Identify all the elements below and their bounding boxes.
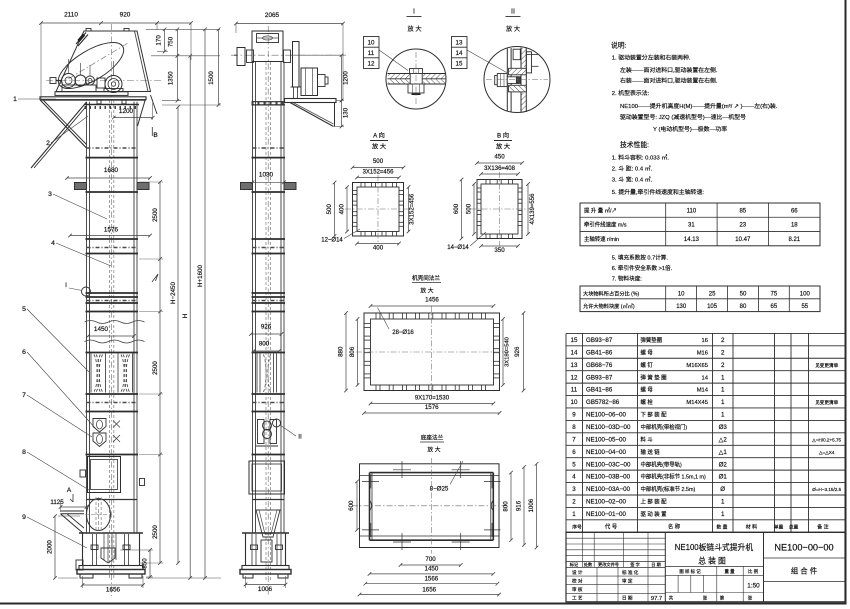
svg-text:螺 母: 螺 母	[641, 386, 654, 394]
svg-text:名 称: 名 称	[668, 522, 681, 530]
svg-text:1: 1	[13, 96, 17, 103]
svg-text:重 量: 重 量	[724, 568, 735, 575]
svg-text:放 大: 放 大	[496, 143, 510, 151]
svg-text:2: 2	[721, 349, 725, 356]
svg-text:1: 1	[721, 374, 725, 381]
svg-text:14: 14	[702, 375, 709, 381]
svg-text:放 大: 放 大	[407, 25, 421, 33]
svg-text:H−2450: H−2450	[170, 282, 177, 304]
svg-text:主轴转速 r/min: 主轴转速 r/min	[584, 235, 619, 243]
svg-text:14−Ø14: 14−Ø14	[447, 245, 469, 251]
svg-text:设 计: 设 计	[572, 569, 583, 576]
svg-text:弹簧垫圈: 弹簧垫圈	[641, 336, 663, 344]
svg-text:85: 85	[739, 208, 746, 214]
svg-text:1200: 1200	[119, 108, 134, 115]
svg-text:4: 4	[572, 474, 576, 481]
svg-text:更改文件号: 更改文件号	[598, 561, 619, 568]
svg-text:105: 105	[707, 304, 718, 310]
svg-text:机壳间法兰: 机壳间法兰	[412, 274, 440, 282]
svg-text:审 定: 审 定	[622, 577, 633, 584]
svg-text:A: A	[67, 487, 72, 494]
svg-text:备 注: 备 注	[817, 523, 828, 530]
svg-text:技术性能:: 技术性能:	[620, 140, 649, 149]
svg-text:3X180=540: 3X180=540	[505, 337, 511, 367]
svg-text:GB93−87: GB93−87	[586, 374, 613, 381]
svg-text:55: 55	[801, 304, 808, 310]
svg-text:放 大: 放 大	[427, 446, 440, 454]
svg-text:见变更清单: 见变更清单	[815, 399, 838, 406]
svg-text:右装——面对进料口,驱动装置在右侧.: 右装——面对进料口,驱动装置在右侧.	[620, 77, 718, 85]
svg-text:1456: 1456	[425, 297, 439, 304]
svg-text:放 大: 放 大	[420, 287, 433, 295]
svg-text:1350: 1350	[168, 71, 175, 85]
svg-text:13: 13	[571, 362, 578, 369]
svg-text:1: 1	[721, 511, 725, 518]
svg-text:10: 10	[571, 399, 578, 406]
svg-text:3: 3	[572, 486, 576, 493]
svg-text:I: I	[65, 282, 67, 289]
svg-text:916: 916	[516, 500, 523, 511]
svg-text:880: 880	[338, 346, 345, 357]
svg-text:18: 18	[791, 223, 798, 229]
svg-text:5: 5	[22, 306, 26, 313]
svg-text:1576: 1576	[425, 404, 439, 411]
svg-text:校 对: 校 对	[572, 577, 583, 584]
svg-text:△1: △1	[719, 449, 728, 456]
svg-text:下 部 装 配: 下 部 装 配	[641, 411, 668, 419]
svg-text:8−Ø25: 8−Ø25	[430, 486, 449, 493]
svg-text:920: 920	[120, 12, 131, 19]
svg-text:9: 9	[572, 412, 576, 419]
svg-text:1656: 1656	[422, 587, 436, 594]
svg-text:Ø3: Ø3	[719, 424, 728, 431]
svg-text:13: 13	[456, 40, 463, 47]
svg-text:800: 800	[259, 341, 270, 348]
svg-text:2500: 2500	[152, 208, 159, 222]
svg-text:总重: 总重	[789, 523, 799, 530]
svg-text:GB5782−86: GB5782−86	[586, 399, 620, 406]
svg-text:组 合 件: 组 合 件	[791, 567, 818, 576]
svg-text:110: 110	[687, 208, 697, 214]
svg-text:806: 806	[349, 346, 356, 357]
svg-text:2: 2	[721, 362, 725, 369]
svg-text:7. 物料块度:: 7. 物料块度:	[612, 275, 643, 283]
svg-text:A 向: A 向	[373, 132, 385, 140]
svg-text:牵引件线速度 m/s: 牵引件线速度 m/s	[584, 221, 627, 229]
svg-text:130: 130	[676, 304, 687, 310]
svg-text:75: 75	[771, 291, 778, 297]
svg-text:螺 母: 螺 母	[641, 348, 654, 356]
svg-text:上 部 装 配: 上 部 装 配	[641, 498, 668, 506]
svg-text:序号: 序号	[572, 523, 582, 530]
svg-text:NE100−02−00: NE100−02−00	[586, 499, 626, 506]
svg-text:比 例: 比 例	[748, 568, 759, 575]
svg-text:400: 400	[373, 245, 384, 252]
svg-text:GB41−86: GB41−86	[586, 387, 613, 394]
svg-text:1450: 1450	[94, 326, 109, 333]
svg-text:NE100−03C−00: NE100−03C−00	[586, 461, 631, 468]
svg-text:400: 400	[339, 204, 346, 215]
svg-text:3X152=456: 3X152=456	[363, 170, 395, 176]
svg-text:放 大: 放 大	[372, 143, 386, 151]
svg-text:1: 1	[721, 412, 725, 419]
svg-text:1: 1	[572, 511, 576, 518]
svg-text:△=H/0.2+5.75: △=H/0.2+5.75	[812, 437, 841, 442]
svg-text:500: 500	[326, 204, 333, 215]
svg-text:8: 8	[572, 424, 576, 431]
svg-text:1200: 1200	[343, 71, 350, 85]
svg-text:25: 25	[709, 291, 716, 297]
svg-text:签 字: 签 字	[630, 561, 640, 567]
svg-text:允许大物料块度 (㎡㎡): 允许大物料块度 (㎡㎡)	[583, 302, 635, 310]
svg-text:单重: 单重	[774, 523, 784, 530]
svg-text:926: 926	[514, 346, 521, 357]
svg-text:1450: 1450	[425, 566, 439, 573]
svg-text:1656: 1656	[106, 587, 121, 594]
svg-text:输 送 链: 输 送 链	[641, 448, 661, 456]
svg-text:中部机壳(带导轨): 中部机壳(带导轨)	[641, 460, 683, 468]
svg-text:2110: 2110	[64, 12, 78, 19]
svg-text:1. 驱动装置分左装和右装两种.: 1. 驱动装置分左装和右装两种.	[612, 54, 691, 62]
svg-text:2. 斗 距: 0.4 ㎡.: 2. 斗 距: 0.4 ㎡.	[612, 165, 653, 173]
svg-text:7: 7	[22, 392, 26, 399]
svg-text:600: 600	[453, 203, 460, 214]
svg-text:28−Ø16: 28−Ø16	[392, 330, 414, 336]
svg-text:底座法兰: 底座法兰	[421, 434, 444, 442]
svg-text:1500: 1500	[208, 71, 215, 85]
svg-text:B 向: B 向	[497, 132, 509, 140]
svg-text:第: 第	[720, 594, 725, 601]
svg-text:I: I	[413, 9, 415, 16]
svg-text:螺 钉: 螺 钉	[641, 361, 654, 369]
svg-text:△2: △2	[719, 436, 728, 443]
svg-text:Ø1: Ø1	[719, 474, 728, 481]
svg-text:1030: 1030	[259, 172, 274, 179]
svg-text:12: 12	[571, 374, 578, 381]
svg-text:6: 6	[572, 449, 576, 456]
svg-text:1125: 1125	[50, 499, 64, 506]
svg-text:66: 66	[791, 208, 798, 214]
svg-text:Ø=H−3.15/2.5: Ø=H−3.15/2.5	[812, 487, 841, 492]
svg-text:10: 10	[368, 40, 375, 47]
svg-text:见变更清单: 见变更清单	[815, 362, 838, 369]
svg-text:弹 簧 垫 圈: 弹 簧 垫 圈	[641, 373, 667, 381]
svg-text:总 装 图: 总 装 图	[698, 556, 726, 566]
svg-text:3X152=456: 3X152=456	[410, 193, 416, 225]
svg-text:1006: 1006	[258, 586, 273, 593]
svg-text:2. 机型表示法:: 2. 机型表示法:	[612, 89, 650, 97]
svg-text:926: 926	[261, 324, 272, 331]
svg-text:工 艺: 工 艺	[572, 596, 583, 601]
svg-text:23: 23	[739, 223, 746, 229]
svg-text:M14: M14	[697, 388, 709, 394]
svg-text:11: 11	[368, 50, 375, 57]
svg-text:31: 31	[688, 223, 695, 229]
svg-text:标记: 标记	[570, 561, 579, 568]
svg-text:16: 16	[702, 338, 708, 344]
svg-text:3: 3	[48, 191, 52, 198]
svg-text:4: 4	[51, 240, 55, 247]
svg-text:5: 5	[572, 461, 576, 468]
svg-text:B: B	[153, 132, 157, 139]
svg-text:8: 8	[22, 449, 26, 456]
svg-text:Ø2: Ø2	[719, 461, 728, 468]
svg-text:14: 14	[456, 50, 463, 57]
svg-text:750: 750	[168, 36, 175, 47]
svg-text:Ø: Ø	[720, 486, 725, 493]
svg-text:65: 65	[771, 304, 778, 310]
svg-text:5. 填充系数按 0.7计算.: 5. 填充系数按 0.7计算.	[612, 254, 669, 262]
svg-text:6: 6	[22, 349, 26, 356]
svg-text:II: II	[511, 9, 515, 16]
svg-text:Y (电动机型号)—极数—功率: Y (电动机型号)—极数—功率	[653, 125, 727, 133]
svg-text:NE100−04−00: NE100−04−00	[586, 449, 626, 456]
svg-text:放 大: 放 大	[506, 25, 520, 33]
svg-text:标 准 化: 标 准 化	[622, 569, 639, 576]
svg-text:驱动装置型号: JZQ (减速机型号)—速比—机型号: 驱动装置型号: JZQ (减速机型号)—速比—机型号	[620, 113, 746, 121]
svg-text:NE100−06−00: NE100−06−00	[586, 412, 626, 419]
svg-text:2500: 2500	[152, 361, 159, 375]
svg-text:GB93−87: GB93−87	[586, 337, 613, 344]
svg-text:100: 100	[800, 291, 811, 297]
svg-text:500: 500	[466, 203, 473, 214]
svg-text:5. 提升量,牵引件线速度和主轴转速:: 5. 提升量,牵引件线速度和主轴转速:	[612, 188, 705, 196]
svg-text:6. 牵引件安全系数 >1倍.: 6. 牵引件安全系数 >1倍.	[612, 264, 673, 272]
svg-text:1006: 1006	[528, 498, 535, 512]
svg-text:GB68−76: GB68−76	[586, 362, 613, 369]
svg-text:2065: 2065	[265, 12, 280, 19]
svg-text:1: 1	[721, 399, 725, 406]
svg-text:左装——面对进料口,驱动装置在左侧.: 左装——面对进料口,驱动装置在左侧.	[620, 66, 718, 74]
svg-text:驱 动 装 置: 驱 动 装 置	[641, 510, 668, 518]
svg-text:12−Ø14: 12−Ø14	[321, 238, 343, 244]
svg-text:97.7: 97.7	[651, 596, 662, 602]
svg-text:数 量: 数 量	[717, 523, 728, 530]
svg-text:张: 张	[748, 594, 753, 601]
svg-text:螺 栓: 螺 栓	[641, 398, 654, 406]
svg-text:NE100板链斗式提升机: NE100板链斗式提升机	[675, 542, 754, 552]
svg-text:600: 600	[348, 500, 355, 511]
svg-text:△=△X4: △=△X4	[819, 450, 835, 455]
svg-text:审 核: 审 核	[572, 586, 583, 593]
svg-text:材 料: 材 料	[746, 523, 757, 530]
svg-text:代 号: 代 号	[605, 522, 618, 530]
svg-text:11: 11	[571, 387, 578, 394]
svg-text:GB41−86: GB41−86	[586, 349, 613, 356]
svg-text:1680: 1680	[104, 167, 119, 174]
svg-text:M16X65: M16X65	[686, 363, 708, 369]
svg-text:说明:: 说明:	[611, 41, 627, 50]
svg-text:14.13: 14.13	[684, 237, 700, 243]
svg-text:1576: 1576	[104, 227, 119, 234]
svg-text:料 斗: 料 斗	[641, 435, 654, 443]
svg-text:中部机壳(非标节 1.5m,1 m): 中部机壳(非标节 1.5m,1 m)	[641, 473, 706, 481]
svg-text:7: 7	[572, 436, 576, 443]
svg-text:12: 12	[368, 61, 375, 68]
svg-text:1. 料斗容积: 0.033 ㎥.: 1. 料斗容积: 0.033 ㎥.	[612, 154, 670, 162]
svg-text:15: 15	[456, 61, 463, 68]
svg-text:2: 2	[572, 499, 576, 506]
svg-text:1: 1	[721, 499, 725, 506]
svg-text:700: 700	[425, 556, 436, 563]
svg-text:NE100——提升机高度H(M)——提升量(m³/ ↗ )—: NE100——提升机高度H(M)——提升量(m³/ ↗ )——左(右)装.	[620, 102, 778, 110]
svg-text:50: 50	[740, 291, 747, 297]
svg-text:8.21: 8.21	[788, 237, 800, 243]
svg-text:10: 10	[678, 291, 685, 297]
svg-text:10.47: 10.47	[735, 237, 751, 243]
svg-text:3X136=408: 3X136=408	[484, 166, 516, 172]
svg-text:H+1600: H+1600	[197, 265, 204, 287]
svg-text:1:50: 1:50	[747, 583, 760, 590]
svg-text:2: 2	[721, 337, 725, 344]
svg-text:3. 斗 宽: 0.4 ㎡.: 3. 斗 宽: 0.4 ㎡.	[612, 176, 653, 184]
svg-text:1566: 1566	[424, 576, 438, 583]
svg-text:350: 350	[494, 247, 505, 254]
svg-text:NE100−05−00: NE100−05−00	[586, 436, 626, 443]
svg-text:170: 170	[155, 35, 162, 46]
svg-text:500: 500	[373, 158, 384, 165]
svg-text:M16: M16	[697, 350, 708, 356]
svg-text:4X139=556: 4X139=556	[530, 193, 536, 225]
svg-text:2000: 2000	[47, 540, 54, 554]
svg-text:14: 14	[571, 349, 578, 356]
svg-text:NE100−03D−00: NE100−03D−00	[586, 424, 631, 431]
svg-text:450: 450	[494, 154, 505, 161]
svg-text:处数: 处数	[584, 561, 593, 568]
svg-text:NE100−01−00: NE100−01−00	[586, 511, 626, 518]
svg-text:15: 15	[571, 337, 578, 344]
svg-text:NE100−03B−00: NE100−03B−00	[586, 474, 631, 481]
svg-text:提 升 量 ㎥/↗: 提 升 量 ㎥/↗	[584, 206, 617, 214]
svg-text:2: 2	[46, 140, 50, 147]
svg-text:H: H	[182, 313, 189, 318]
svg-text:9: 9	[22, 514, 26, 521]
svg-text:850: 850	[142, 558, 149, 569]
svg-text:中部机壳(带检视门): 中部机壳(带检视门)	[641, 423, 688, 431]
svg-text:中部机壳(标准节 2.5m): 中部机壳(标准节 2.5m)	[641, 485, 696, 493]
svg-text:NE100−00−00: NE100−00−00	[774, 543, 833, 553]
svg-text:9X170=1530: 9X170=1530	[415, 396, 450, 402]
svg-text:1: 1	[721, 387, 725, 394]
svg-text:II: II	[298, 434, 302, 441]
svg-text:张: 张	[703, 594, 708, 601]
svg-text:800: 800	[503, 501, 510, 512]
svg-text:2500: 2500	[152, 525, 159, 539]
svg-text:大块物料所占百分比 (%): 大块物料所占百分比 (%)	[583, 289, 639, 297]
svg-text:NE100−03A−00: NE100−03A−00	[586, 486, 631, 493]
svg-text:图 样 标 记: 图 样 标 记	[679, 568, 701, 575]
svg-text:共: 共	[669, 594, 674, 601]
svg-text:130: 130	[343, 107, 350, 118]
svg-text:M14X45: M14X45	[686, 400, 708, 406]
svg-text:80: 80	[740, 304, 747, 310]
